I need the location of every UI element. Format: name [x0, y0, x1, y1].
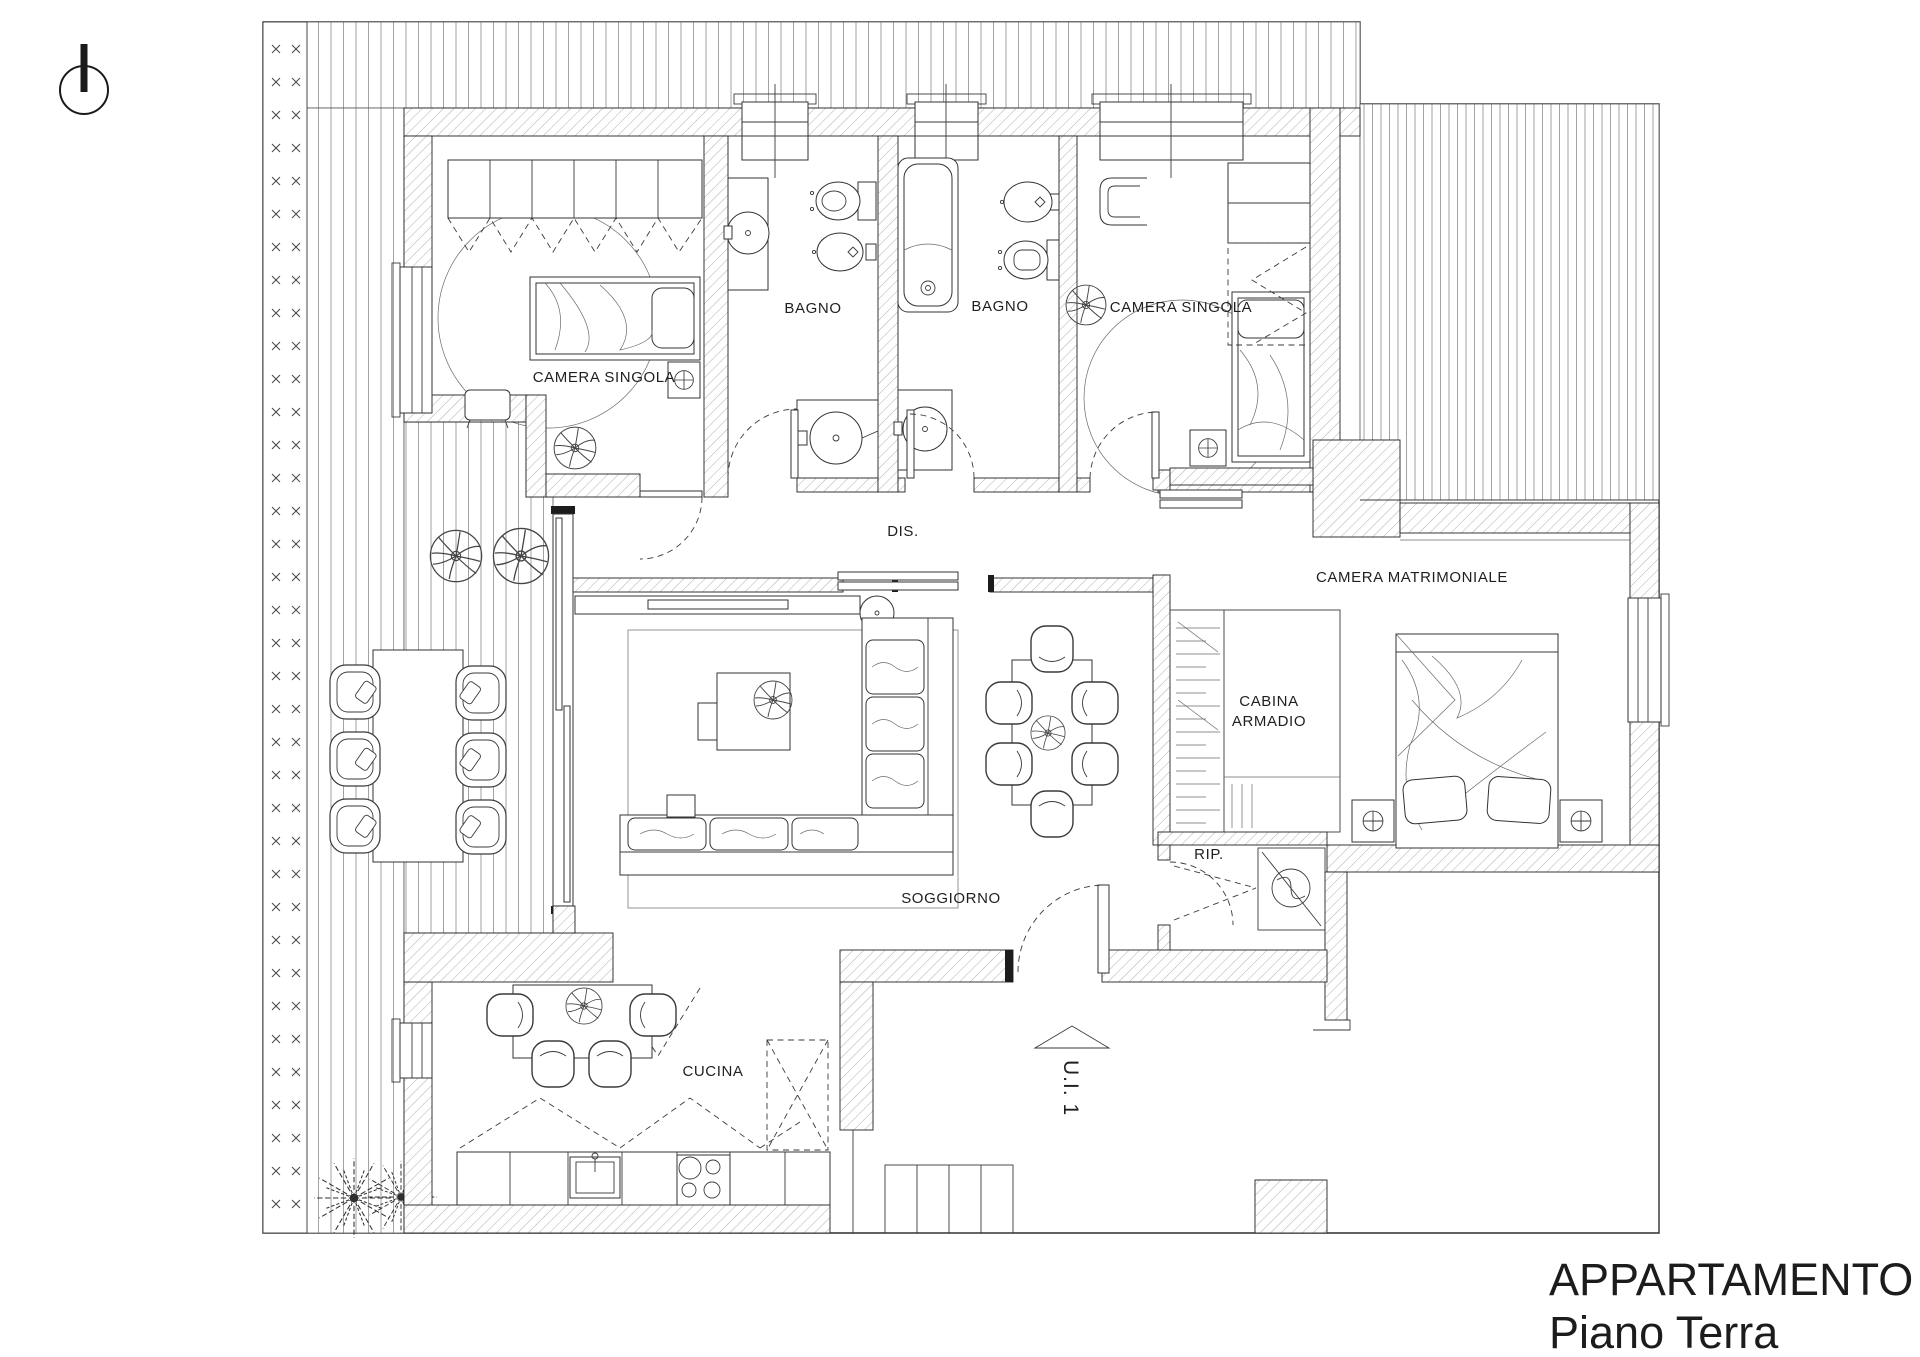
plan-title-line2: Piano Terra	[1549, 1307, 1779, 1357]
bed-double	[1396, 634, 1558, 848]
deck-top-band	[307, 22, 1360, 108]
label-unit: U.I. 1	[1059, 1060, 1082, 1116]
vanity-sink	[894, 390, 952, 470]
label-cucina: CUCINA	[682, 1063, 743, 1080]
kitchen-chair	[630, 994, 676, 1036]
dining-chair	[1072, 682, 1118, 724]
terrace-table	[373, 650, 463, 862]
plan-title-line1: APPARTAMENTO 1	[1549, 1254, 1920, 1305]
sliding-door-terrace	[551, 506, 575, 933]
terrace-chair	[330, 732, 380, 786]
label-camera-singola-1: CAMERA SINGOLA	[533, 369, 676, 386]
dining-chair	[1031, 626, 1073, 672]
coffee-table	[717, 673, 790, 750]
label-cabina-armadio-1: CABINA	[1239, 693, 1298, 710]
label-cabina-armadio-2: ARMADIO	[1232, 713, 1306, 730]
label-camera-matrimoniale: CAMERA MATRIMONIALE	[1316, 569, 1508, 586]
window-matrimoniale-east	[1628, 594, 1669, 726]
kitchen-chair	[487, 994, 533, 1036]
label-disimpegno: DIS.	[887, 523, 919, 540]
terrace-chair	[330, 799, 380, 853]
terrace-chair	[330, 665, 380, 719]
kitchen-chair	[589, 1041, 631, 1087]
gravel-strip	[263, 22, 307, 1233]
label-camera-singola-2: CAMERA SINGOLA	[1110, 299, 1253, 316]
dining-chair	[986, 743, 1032, 785]
floorbox-icon	[1571, 811, 1591, 831]
tv-unit	[575, 596, 860, 614]
title-block: APPARTAMENTO 1 Piano Terra	[1549, 1254, 1920, 1357]
cooktop	[677, 1155, 730, 1205]
bed-single	[530, 277, 700, 360]
floorbox-icon	[1199, 439, 1218, 458]
floor-plan-canvas: CAMERA SINGOLA BAGNO BAGNO CAMERA SINGOL…	[0, 0, 1920, 1357]
desk-chair	[1100, 178, 1147, 225]
dining-chair	[1031, 791, 1073, 837]
label-bagno-2: BAGNO	[971, 298, 1028, 315]
north-arrow-icon	[60, 44, 108, 114]
shower	[797, 400, 878, 478]
bed-single	[1232, 292, 1310, 462]
terrace-chair	[456, 800, 506, 854]
terrace-chair	[456, 666, 506, 720]
label-soggiorno: SOGGIORNO	[901, 890, 1001, 907]
floorbox-icon	[675, 371, 694, 390]
floorplan-page: CAMERA SINGOLA BAGNO BAGNO CAMERA SINGOL…	[0, 0, 1920, 1357]
small-table	[667, 795, 695, 817]
terrace-chair	[456, 733, 506, 787]
floorbox-icon	[1363, 811, 1383, 831]
label-bagno-1: BAGNO	[784, 300, 841, 317]
kitchen-chair	[532, 1041, 574, 1087]
vanity-sink	[724, 178, 769, 290]
deck-roof-right	[1360, 104, 1659, 500]
label-ripostiglio: RIP.	[1194, 846, 1224, 863]
dining-chair	[986, 682, 1032, 724]
kitchen-sink	[570, 1153, 620, 1198]
dining-chair	[1072, 743, 1118, 785]
bathtub	[898, 158, 958, 312]
